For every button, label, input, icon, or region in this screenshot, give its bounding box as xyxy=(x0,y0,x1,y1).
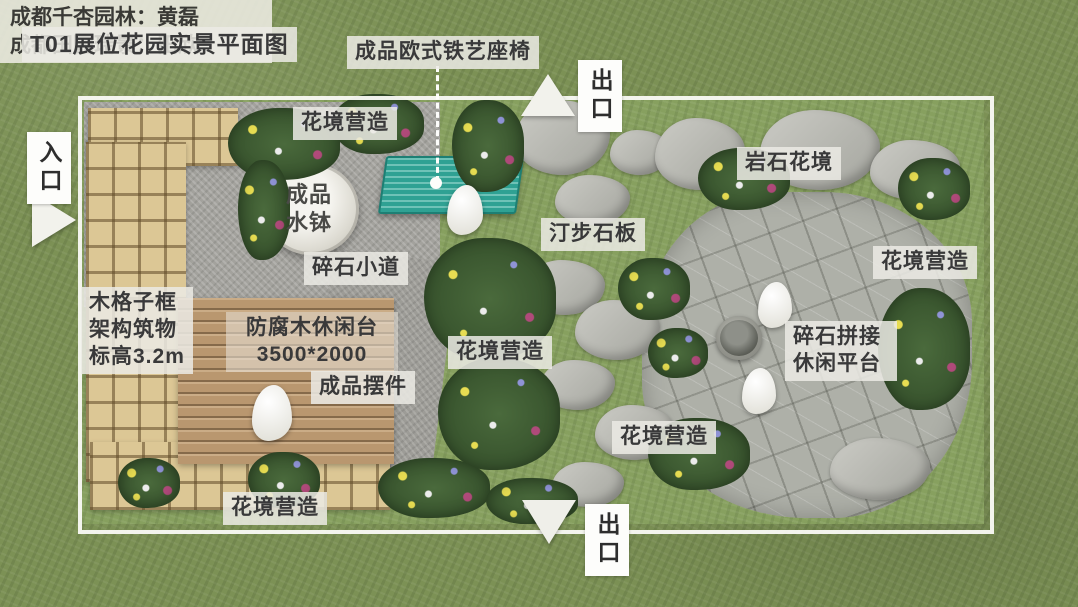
plant-cluster xyxy=(118,458,180,508)
page-title: T01展位花园实景平面图 xyxy=(22,27,297,62)
exit-bottom-label: 出口 xyxy=(585,504,629,576)
flower-border-bottom-label: 花境营造 xyxy=(223,492,327,525)
bench-callout-line xyxy=(436,66,439,182)
flower-border-right-label: 花境营造 xyxy=(873,246,977,279)
wood-deck-size-text: 3500*2000 xyxy=(234,342,390,369)
water-bowl-label: 成品水钵 xyxy=(283,181,335,237)
plant-cluster xyxy=(452,100,524,192)
lattice-structure-label: 木格子框架构筑物 标高3.2m xyxy=(81,287,193,374)
flower-border-center-label: 花境营造 xyxy=(448,336,552,369)
iron-bench-label: 成品欧式铁艺座椅 xyxy=(347,36,539,69)
plant-cluster xyxy=(378,458,490,518)
entrance-label: 入口 xyxy=(27,132,71,204)
plant-cluster xyxy=(898,158,970,220)
flower-border-top-label: 花境营造 xyxy=(293,107,397,140)
lattice-structure-text: 木格子框架构筑物 xyxy=(89,291,177,341)
exit-bottom-arrow-icon xyxy=(522,500,576,544)
exit-top-arrow-icon xyxy=(521,74,575,116)
ornament-label: 成品摆件 xyxy=(311,371,415,404)
bench-callout-dot xyxy=(430,177,442,189)
plant-cluster xyxy=(618,258,690,320)
gravel-path-label: 碎石小道 xyxy=(304,252,408,285)
exit-top-label: 出口 xyxy=(578,60,622,132)
deer-sculpture xyxy=(742,368,776,414)
wood-deck-label: 防腐木休闲台 3500*2000 xyxy=(226,312,398,372)
wood-deck-text: 防腐木休闲台 xyxy=(246,316,378,339)
stone-pot xyxy=(716,316,762,360)
flower-border-mid-label: 花境营造 xyxy=(612,421,716,454)
garden-plan-image: 出口 入口 出口 T01展位花园实景平面图 成品欧式铁艺座椅 花境营造 成品水钵… xyxy=(0,0,1078,607)
plant-cluster xyxy=(648,328,708,378)
plant-cluster xyxy=(438,358,560,470)
rock-flower-border-label: 岩石花境 xyxy=(737,147,841,180)
stepping-stones-label: 汀步石板 xyxy=(541,218,645,251)
lattice-elevation-text: 标高3.2m xyxy=(89,344,185,371)
gravel-platform-label: 碎石拼接休闲平台 xyxy=(785,321,897,381)
